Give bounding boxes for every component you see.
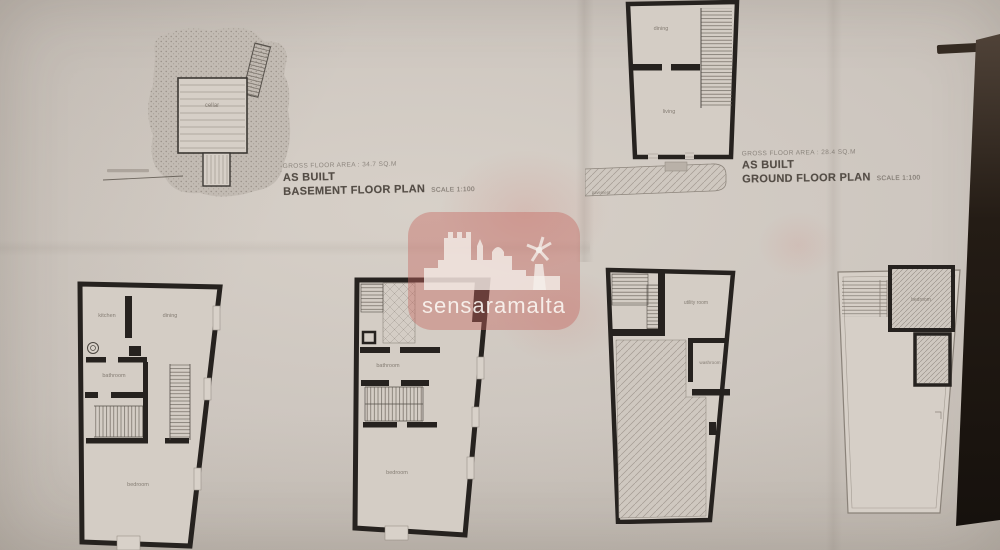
pavement-area: pavement xyxy=(585,164,726,196)
roof-plan-drawing: bedroom xyxy=(830,252,965,542)
cellar-room: cellar xyxy=(178,78,247,153)
basement-scale-note: SCALE 1:100 xyxy=(431,186,475,194)
roof-room-upper: bedroom xyxy=(890,267,953,330)
watermark-logo-silhouette: sensaramalta xyxy=(408,212,580,330)
bedroom-label: bedroom xyxy=(127,482,149,488)
first-floor-plan-drawing: kitchen dining bathroom bedroom xyxy=(70,278,245,550)
windmill-base xyxy=(533,264,546,290)
third-floor-plan-drawing: utility room washroom xyxy=(600,252,740,524)
floor-plans-photo: cellar pavement xyxy=(0,0,1000,550)
dining-label: dining xyxy=(163,313,178,319)
paper-edge-dash xyxy=(937,43,977,54)
basement-title: BASEMENT FLOOR PLAN xyxy=(283,183,425,198)
shaft xyxy=(363,332,375,343)
roof-stairs xyxy=(842,280,887,317)
skyline-silhouette-icon xyxy=(424,232,560,290)
cellar-label: cellar xyxy=(205,103,219,109)
roof-room-lower xyxy=(915,334,950,385)
windmill-icon xyxy=(527,237,551,261)
pavement-label: pavement xyxy=(592,190,611,195)
ground-staircase xyxy=(701,8,732,108)
ground-title: GROUND FLOOR PLAN xyxy=(742,171,871,185)
watermark-badge: sensaramalta xyxy=(408,212,580,330)
ground-scale-note: SCALE 1:100 xyxy=(877,174,921,182)
second-staircase xyxy=(365,387,423,421)
bathroom-label: bathroom xyxy=(376,363,400,369)
bedroom-label: bedroom xyxy=(386,470,408,476)
entrance-step xyxy=(117,536,140,550)
dining-label: dining xyxy=(654,26,669,32)
cellar-entry-steps xyxy=(203,153,230,186)
kitchen-label: kitchen xyxy=(98,313,115,319)
pink-stain xyxy=(758,212,838,278)
ground-caption: GROSS FLOOR AREA : 28.4 SQ.M AS BUILT GR… xyxy=(742,146,921,188)
bathroom-label: bathroom xyxy=(102,373,126,379)
entrance-step xyxy=(665,162,687,171)
basement-caption: GROSS FLOOR AREA : 34.7 SQ.M AS BUILT BA… xyxy=(283,158,476,201)
ground-title-line: GROUND FLOOR PLANSCALE 1:100 xyxy=(742,169,921,188)
utility-room-label: utility room xyxy=(684,300,708,306)
entrance-step xyxy=(385,526,408,540)
wc-fixture-circle xyxy=(88,343,99,354)
basement-title-line: BASEMENT FLOOR PLANSCALE 1:100 xyxy=(283,181,475,201)
watermark-text: sensaramalta xyxy=(422,293,566,318)
washroom-label: washroom xyxy=(699,360,720,365)
bedroom-label: bedroom xyxy=(911,297,931,303)
ground-plan-drawing: pavement dining living xyxy=(585,0,760,215)
living-label: living xyxy=(663,109,676,115)
